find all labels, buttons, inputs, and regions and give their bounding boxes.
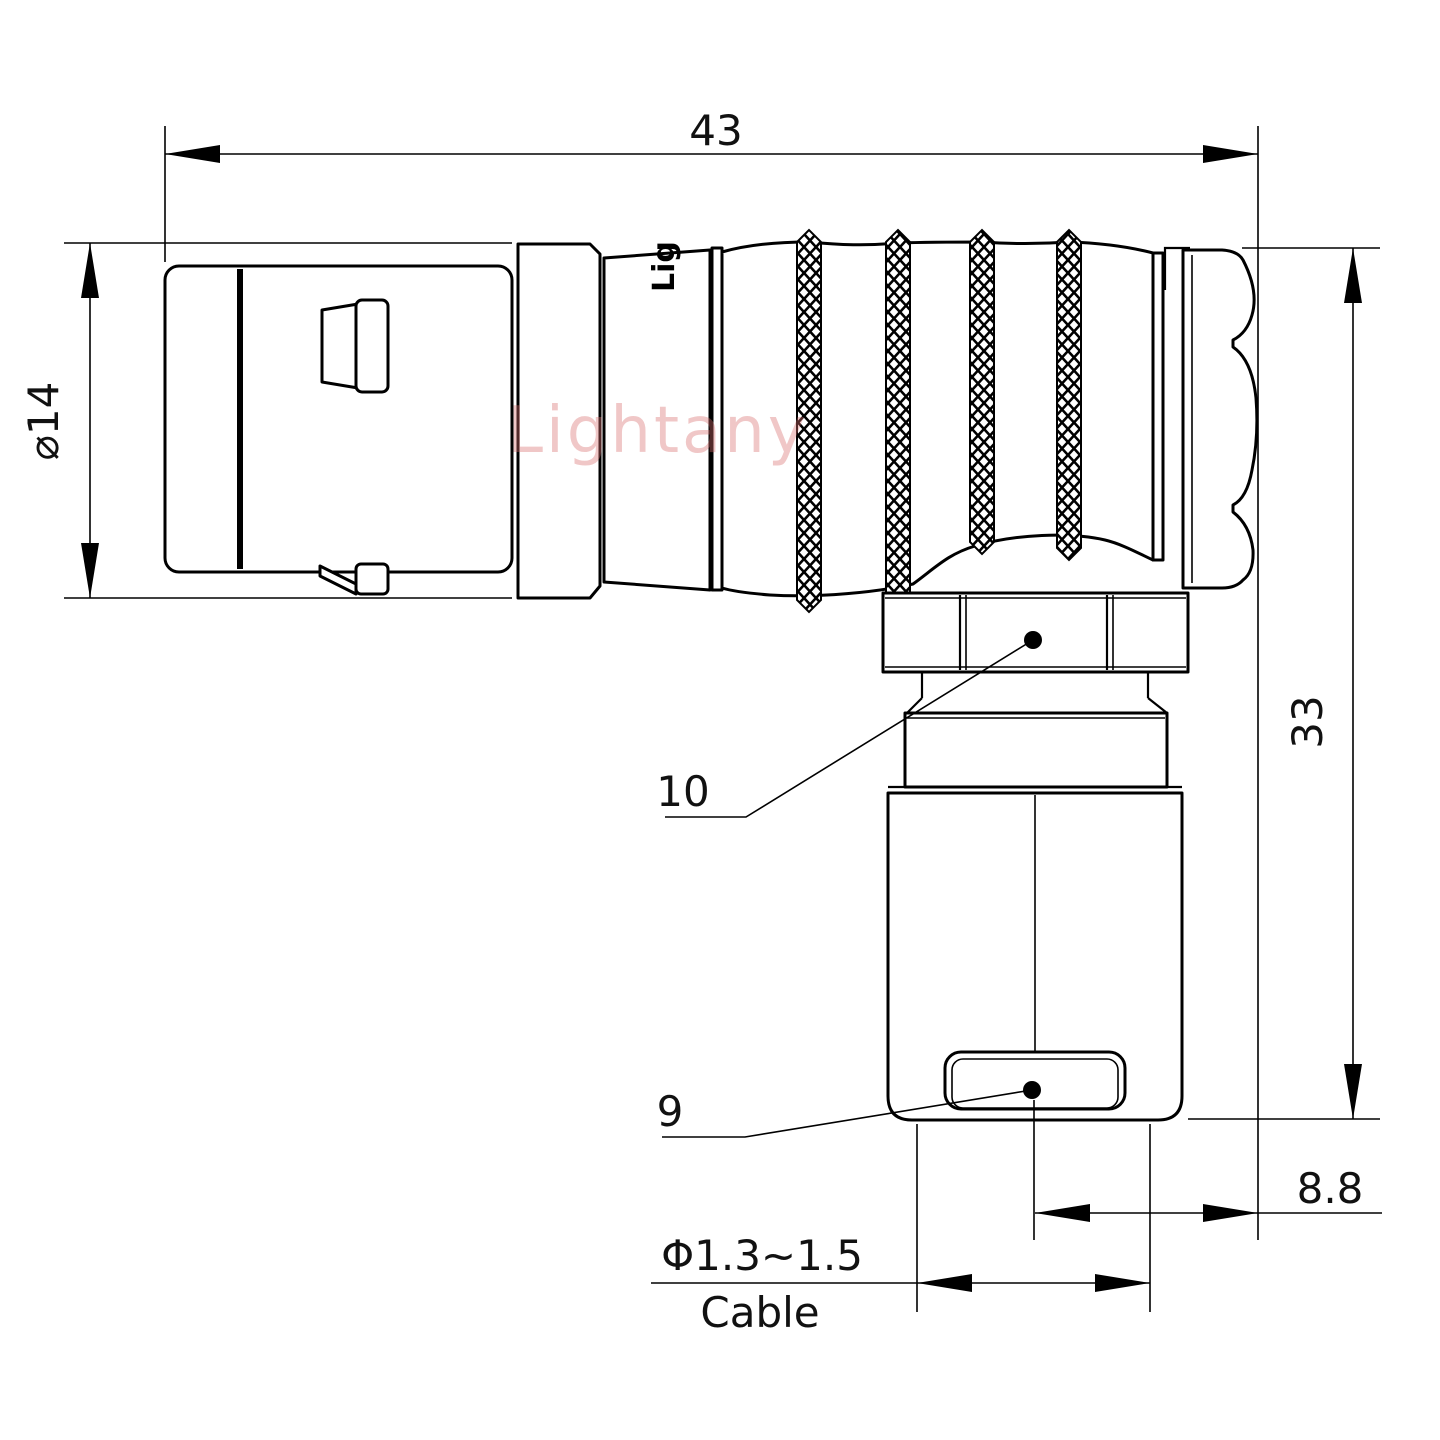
callout-label-10: 10 <box>656 767 709 816</box>
knurl-band <box>970 230 994 554</box>
dim-label-rear-offset: 8.8 <box>1297 1164 1364 1213</box>
end-nut <box>1183 250 1257 588</box>
knurl-band <box>886 230 910 610</box>
upper-boot <box>905 713 1167 787</box>
body-engraving-text: Lig <box>647 241 682 292</box>
dim-cable: Φ1.3~1.5 Cable <box>651 1124 1150 1337</box>
watermark: Lightany <box>507 394 808 468</box>
leader-dot <box>1023 1081 1041 1099</box>
cable-word-label: Cable <box>700 1288 819 1337</box>
dim-label-overall-length: 43 <box>689 106 742 155</box>
neck <box>907 672 1167 713</box>
leader-dot <box>1024 631 1042 649</box>
knurl-band <box>1057 230 1081 560</box>
dim-label-front-diameter: ⌀14 <box>19 382 68 461</box>
dim-label-overall-height: 33 <box>1283 695 1332 748</box>
rear-groove-ring <box>1153 253 1163 560</box>
technical-drawing-canvas: 43 ⌀14 33 8.8 Φ1.3~1.5 Cable <box>0 0 1440 1440</box>
cable-diameter-label: Φ1.3~1.5 <box>661 1231 863 1280</box>
connector-drawing-svg: 43 ⌀14 33 8.8 Φ1.3~1.5 Cable <box>0 0 1440 1440</box>
callout-label-9: 9 <box>657 1087 684 1136</box>
elbow-section <box>883 593 1188 1120</box>
key-tab <box>322 300 388 392</box>
